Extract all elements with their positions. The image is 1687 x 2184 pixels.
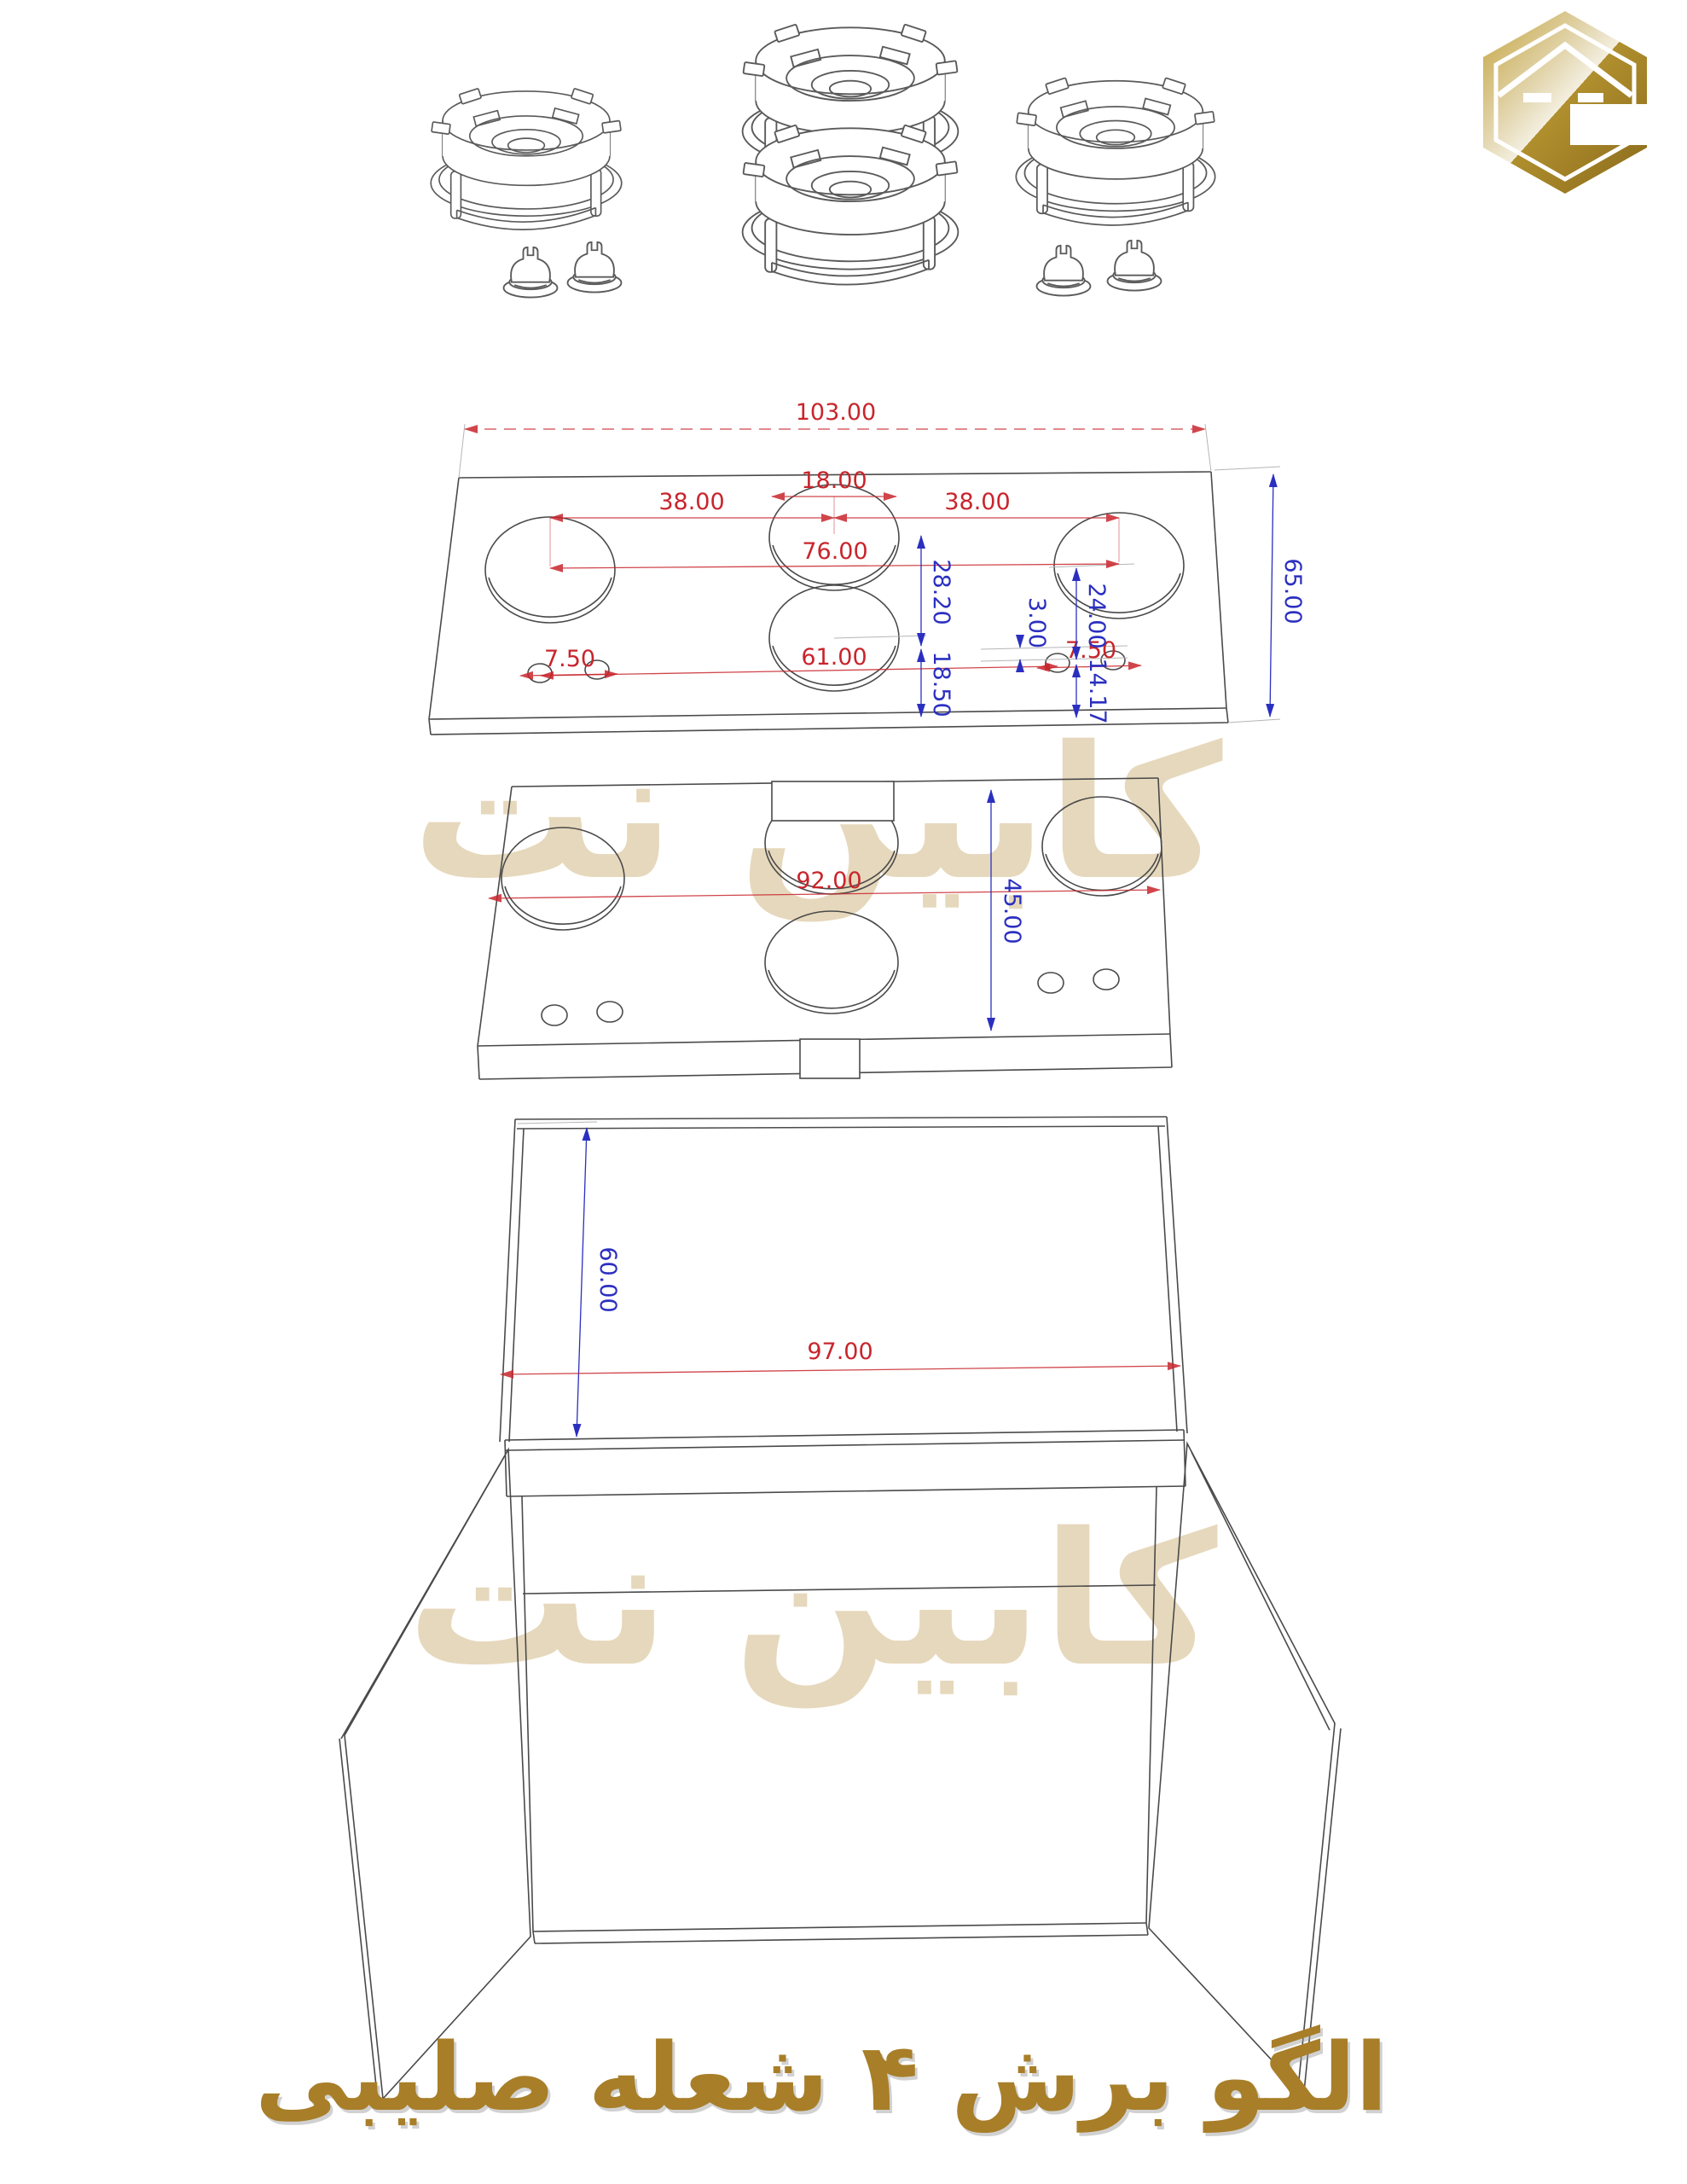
lower-plate-bottom-notch — [800, 1039, 860, 1078]
drawing-sheet: کابین نت کابین نت — [0, 0, 1687, 2184]
dim-left-ignitor-spacing: 7.50 — [544, 646, 595, 672]
burner-caps-right — [1037, 241, 1162, 296]
cabinet-counter-band — [505, 1430, 1186, 1496]
dim-lower-plate-width: 92.00 — [796, 868, 861, 894]
dim-ignitor-span: 61.00 — [801, 644, 867, 671]
logo-handle-right — [1578, 93, 1603, 102]
burner-right — [1016, 78, 1215, 225]
dim-overall-depth: 65.00 — [1279, 558, 1306, 624]
top-plate-dimensions: 103.00 18.00 38.00 38.00 76.00 7.50 61.0… — [459, 399, 1306, 724]
lower-plate-top-notch — [772, 781, 894, 821]
dim-right-spacing: 38.00 — [944, 489, 1010, 515]
dim-center-hole-diameter: 18.00 — [801, 468, 867, 494]
logo-c-notch — [1570, 104, 1655, 145]
burner-caps-left — [504, 242, 622, 298]
burner-left — [431, 89, 622, 230]
page-title: الگو برش ۴ شعله صلیبی الگو برش ۴ شعله صل… — [255, 2023, 1390, 2136]
logo-handle-left — [1523, 93, 1551, 102]
dim-right-hole-offset: 24.00 — [1083, 583, 1110, 648]
dim-lower-plate-depth: 45.00 — [999, 878, 1025, 944]
lower-plate-ignitor-holes — [542, 969, 1119, 1025]
brand-logo — [1483, 11, 1655, 194]
dim-overall-width: 103.00 — [796, 399, 876, 426]
dim-left-spacing: 38.00 — [658, 489, 724, 515]
dim-outer-centers-span: 76.00 — [802, 538, 867, 565]
dim-cabinet-height: 60.00 — [594, 1246, 621, 1312]
logo-hexagon — [1483, 11, 1647, 194]
watermark-text-lower: کابین نت — [407, 1493, 1219, 1709]
page-title-text: الگو برش ۴ شعله صلیبی — [255, 2023, 1388, 2133]
dim-ignitor-row-offset: 3.00 — [1023, 597, 1050, 648]
dim-ignitor-front-offset: 14.17 — [1084, 658, 1110, 723]
dim-front-offset: 18.50 — [928, 651, 954, 717]
dim-center-holes-gap: 28.20 — [928, 559, 954, 624]
drawing-canvas: کابین نت کابین نت — [0, 0, 1687, 2184]
dim-cabinet-width: 97.00 — [807, 1339, 872, 1365]
cabinet-dimensions: 60.00 97.00 — [501, 1122, 1180, 1437]
burner-middle-stack — [743, 25, 959, 285]
